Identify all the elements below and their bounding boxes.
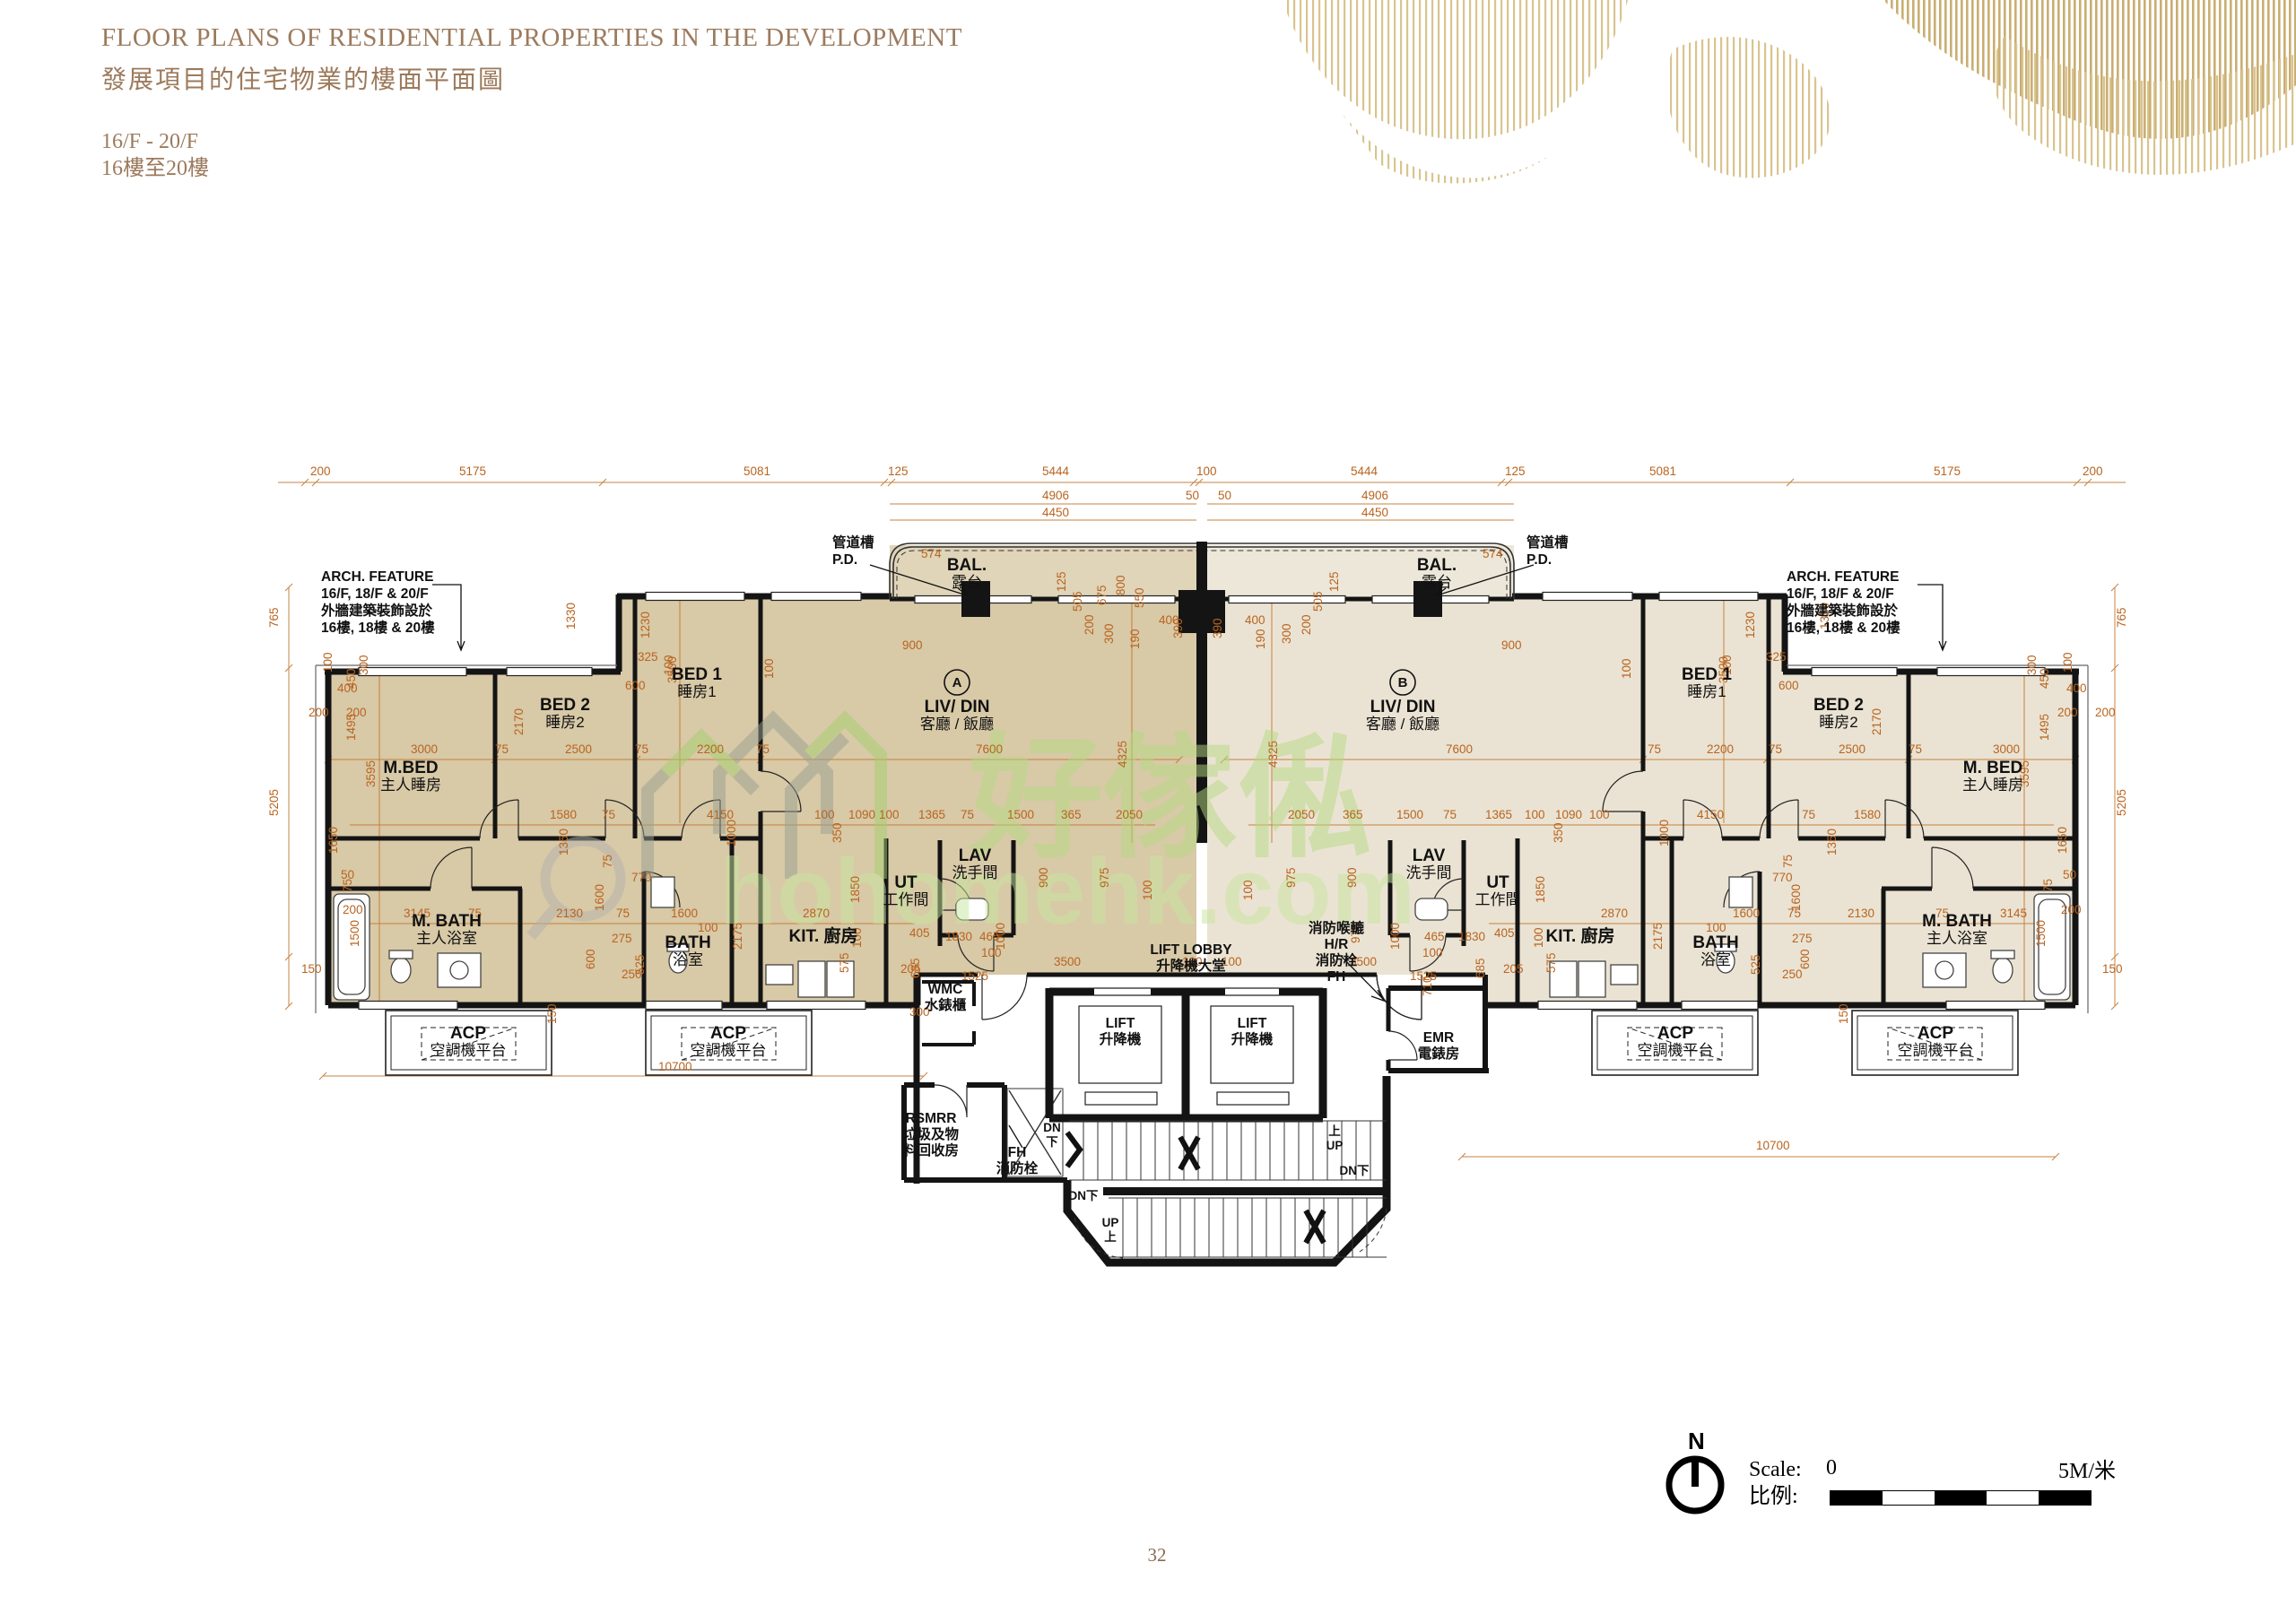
dim-label: 574: [921, 547, 942, 560]
dim-label: 150: [1837, 1003, 1850, 1024]
room-label: M. BATH: [1922, 912, 1992, 931]
core-label: FH: [1327, 969, 1346, 985]
dim-label: 100: [2061, 652, 2074, 673]
core-label: RSMRR: [906, 1111, 957, 1126]
dim-label: 75: [1769, 742, 1782, 756]
callout-label: 管道槽: [832, 534, 874, 551]
scale-start: 0: [1826, 1456, 1837, 1480]
dim-label: 300: [357, 655, 370, 675]
dim-label: 575: [1544, 952, 1558, 973]
core-label: 消防喉轆: [1309, 919, 1365, 936]
dim-label: 400: [1245, 613, 1265, 627]
dim-label: 1650: [2056, 827, 2069, 854]
dim-label: 675: [1095, 585, 1109, 605]
core-label: 消防栓: [996, 1159, 1039, 1176]
dim-label: 75: [601, 855, 614, 868]
compass-n-label: N: [1688, 1428, 1705, 1455]
floor-plan: 好傢俬 hohomehk.com 20051755081125544410054…: [242, 448, 2144, 1282]
dim-label: 765: [2115, 607, 2128, 628]
dim-label: 1090: [848, 808, 875, 821]
dim-label: 405: [1494, 926, 1515, 940]
dim-label: 325: [638, 650, 658, 664]
dim-label: 975: [1098, 867, 1111, 888]
dim-label: 200: [2095, 706, 2116, 719]
dim-label: 1350: [1825, 829, 1839, 855]
dim-label: 100: [879, 808, 900, 821]
room-label-zh: 空調機平台: [691, 1042, 767, 1059]
page-number: 32: [1112, 1544, 1202, 1567]
dim-label: 5205: [267, 789, 281, 816]
dim-label: 50: [1186, 489, 1199, 502]
dim-label: 1365: [1485, 808, 1512, 821]
room-label-zh: 露台: [1422, 574, 1452, 591]
dim-label: 1000: [1388, 923, 1402, 950]
dim-label: 1090: [1555, 808, 1582, 821]
dim-label: 1600: [671, 907, 698, 920]
dim-label: 2870: [803, 907, 830, 920]
dim-label: 365: [1061, 808, 1082, 821]
dim-label: 75: [616, 907, 630, 920]
dim-label: 10700: [1756, 1139, 1790, 1152]
room-label-zh: 客廳 / 飯廳: [1366, 716, 1439, 733]
dim-label: 4906: [1042, 489, 1069, 502]
dim-label: 975: [1284, 867, 1298, 888]
legend: N Scale: 比例: 0 5M/米: [1650, 1426, 2152, 1533]
dim-label: 275: [1792, 932, 1813, 945]
core-label: 消防栓: [1316, 951, 1358, 968]
dim-label: 250: [1782, 968, 1803, 981]
stair-label: 上: [1328, 1124, 1341, 1138]
room-label: LIV/ DIN: [925, 698, 990, 716]
dim-label: 100: [1525, 808, 1545, 821]
room-label: BED 1: [672, 665, 722, 684]
dim-label: 1500: [1396, 808, 1423, 821]
dim-label: 275: [612, 932, 632, 945]
dim-label: 4450: [1042, 506, 1069, 519]
dim-label: 50: [1218, 489, 1231, 502]
callout-label: 管道槽: [1526, 534, 1569, 551]
dim-label: 2500: [1839, 742, 1865, 756]
dim-label: 100: [1620, 658, 1633, 679]
room-label-zh: 浴室: [673, 951, 703, 968]
callout-label: 外牆建築裝飾設於: [1787, 602, 1899, 619]
callout-label: P.D.: [1526, 552, 1552, 568]
dim-label: 1500: [1007, 808, 1034, 821]
room-label: BAL.: [1417, 556, 1457, 575]
dim-label: 200: [2083, 464, 2103, 478]
core-label: 升降機: [1231, 1030, 1274, 1047]
room-label: BED 2: [1813, 696, 1864, 715]
dim-label: 75: [635, 742, 648, 756]
dim-label: 75: [756, 742, 770, 756]
dim-label: 685: [1474, 958, 1487, 978]
dim-label: 300: [2025, 655, 2039, 675]
core-label: 升降機: [1100, 1030, 1142, 1047]
core-label: 垃圾及物: [903, 1125, 960, 1142]
room-label: ACP: [1657, 1024, 1693, 1043]
dim-label: 100: [1141, 880, 1154, 900]
core-label: LIFT LOBBY: [1150, 942, 1232, 958]
room-label-zh: 空調機平台: [1898, 1042, 1974, 1059]
dim-label: 3000: [411, 742, 438, 756]
dim-label: 2050: [1288, 808, 1315, 821]
dim-label: 100: [1241, 880, 1255, 900]
dim-label: 200: [343, 903, 363, 916]
room-label-zh: 睡房1: [1687, 683, 1726, 700]
dim-label: 350: [831, 822, 844, 843]
dim-label: 5444: [1351, 464, 1378, 478]
callout-label: ARCH. FEATURE: [321, 569, 433, 585]
dim-label: 75: [961, 808, 974, 821]
dim-label: 300: [1280, 623, 1293, 644]
room-label-zh: 洗手間: [1406, 864, 1452, 881]
dim-label: 1830: [945, 930, 972, 943]
dim-label: 1350: [557, 829, 570, 855]
dim-label: 200: [1083, 614, 1096, 635]
floor-plan-drawing: 好傢俬 hohomehk.com 20051755081125544410054…: [242, 448, 2144, 1282]
dim-label: 390: [1171, 618, 1185, 638]
room-label: BED 2: [540, 696, 590, 715]
stair-labels: DN下上UPDN下DN下UP上: [1043, 1121, 1370, 1244]
room-label: BED 1: [1682, 665, 1732, 684]
dim-label: 525: [1749, 954, 1762, 975]
dim-label: 574: [1483, 547, 1503, 560]
dim-label: 100: [814, 808, 835, 821]
dim-label: 390: [1211, 618, 1224, 638]
dim-label: 200: [2061, 903, 2082, 916]
dim-label: 2200: [697, 742, 724, 756]
room-label: ACP: [450, 1024, 486, 1043]
dim-label: 1000: [1657, 820, 1671, 846]
dim-label: 710: [1421, 976, 1434, 996]
room-label-zh: 客廳 / 飯廳: [920, 716, 994, 733]
dim-label: 300: [1102, 623, 1116, 644]
dim-label: 2050: [1116, 808, 1143, 821]
dim-label: 1650: [326, 827, 340, 854]
core-label: 電錶房: [1418, 1045, 1460, 1062]
room-label-zh: 睡房2: [1819, 714, 1857, 731]
dim-label: 325: [1766, 650, 1787, 664]
dim-label: 600: [1779, 679, 1799, 692]
dim-label: 125: [1055, 571, 1068, 592]
dim-label: 1850: [848, 876, 862, 903]
dim-label: 400: [2066, 681, 2087, 695]
dim-label: 600: [1798, 949, 1812, 969]
room-label-zh: 工作間: [883, 891, 929, 908]
dim-label: 1830: [1458, 930, 1485, 943]
dim-label: 2130: [1848, 907, 1874, 920]
dim-label: 4325: [1116, 741, 1129, 768]
room-label-zh: 露台: [952, 574, 982, 591]
dim-label: 2175: [731, 923, 744, 950]
stair-label: DN下: [1069, 1189, 1099, 1202]
dim-label: 200: [2057, 706, 2078, 719]
decorative-wave-pattern: [1256, 0, 2296, 206]
dim-label: 1500: [348, 920, 361, 947]
dim-label: 4325: [1266, 741, 1280, 768]
dim-label: 190: [1128, 629, 1142, 649]
floor-range-en: 16/F - 20/F: [101, 128, 209, 155]
dim-label: 200: [1300, 614, 1313, 635]
dim-label: 5081: [1649, 464, 1676, 478]
core-label: 料回收房: [903, 1141, 959, 1159]
dim-label: 450: [2038, 668, 2051, 689]
dim-label: 1600: [1733, 907, 1760, 920]
dim-label: 2170: [1870, 708, 1883, 735]
dim-label: 75: [1648, 742, 1661, 756]
core-label: LIFT: [1238, 1016, 1267, 1031]
core-label: WMC: [928, 982, 963, 997]
dim-label: 1495: [344, 714, 358, 741]
dim-label: 5205: [2115, 789, 2128, 816]
dim-label: 125: [1327, 571, 1341, 592]
room-label-zh: 浴室: [1700, 951, 1731, 968]
dim-label: 685: [909, 958, 922, 978]
dim-label: 75: [1909, 742, 1922, 756]
dim-label: 100: [1422, 946, 1443, 959]
core-label: EMR: [1423, 1030, 1454, 1046]
dim-label: 75: [341, 879, 354, 892]
dim-label: 100: [1706, 921, 1726, 934]
room-label: LIV/ DIN: [1370, 698, 1436, 716]
page-title: FLOOR PLANS OF RESIDENTIAL PROPERTIES IN…: [101, 23, 962, 96]
dim-label: 1230: [639, 612, 652, 638]
dim-label: 75: [602, 808, 615, 821]
dim-label: 4906: [1361, 489, 1388, 502]
core-label: LIFT: [1106, 1016, 1135, 1031]
dim-label: 765: [267, 607, 281, 628]
stair-label: DN: [1043, 1121, 1061, 1134]
core-label: FH: [1008, 1145, 1027, 1160]
core-label: H/R: [1325, 937, 1349, 952]
stair-label: DN下: [1340, 1164, 1370, 1177]
dim-label: 1600: [1789, 884, 1803, 911]
dim-label: 800: [1114, 575, 1127, 595]
dim-label: 2130: [556, 907, 583, 920]
room-label-zh: 主人睡房: [1962, 777, 2023, 794]
room-label-zh: 主人浴室: [1926, 930, 1987, 947]
stair-label: 下: [1046, 1135, 1058, 1149]
dim-label: 7600: [976, 742, 1003, 756]
dim-label: 75: [1443, 808, 1457, 821]
dim-label: 100: [1589, 808, 1610, 821]
room-label: KIT. 廚房: [1545, 925, 1614, 946]
callout-label: 16樓, 18樓 & 20樓: [1787, 619, 1900, 636]
dim-label: 4150: [1697, 808, 1724, 821]
room-label: ACP: [710, 1024, 746, 1043]
stair-label: UP: [1102, 1216, 1119, 1229]
callout-label: ARCH. FEATURE: [1787, 569, 1899, 585]
stair-label: UP: [1326, 1139, 1344, 1152]
dim-label: 2170: [512, 708, 526, 735]
dim-label: 50: [2063, 868, 2076, 881]
dim-label: 75: [495, 742, 509, 756]
dim-label: 365: [1343, 808, 1363, 821]
dim-label: 1000: [725, 820, 738, 846]
dim-label: 1500: [2034, 920, 2048, 947]
dim-label: 205: [1503, 962, 1524, 976]
floor-range-zh: 16樓至20樓: [101, 155, 209, 182]
room-label-zh: 洗手間: [952, 864, 998, 881]
room-label: UT: [894, 873, 918, 892]
scale-bar: [1830, 1490, 2092, 1506]
dim-label: 7600: [1446, 742, 1473, 756]
dim-label: 575: [838, 952, 851, 973]
dim-label: 75: [2041, 879, 2055, 892]
scale-label-en: Scale:: [1749, 1456, 1802, 1483]
dim-label: 465: [979, 930, 1000, 943]
dim-label: 75: [1802, 808, 1815, 821]
dim-label: 465: [1424, 930, 1445, 943]
dim-label: 100: [698, 921, 718, 934]
room-label: KIT. 廚房: [788, 925, 857, 946]
room-label: LAV: [959, 846, 992, 865]
dim-label: 405: [909, 926, 930, 940]
unit-badge-letter: B: [1398, 675, 1408, 690]
scale-end: 5M/米: [2058, 1453, 2116, 1484]
room-label: M.BED: [383, 759, 438, 777]
dim-label: 100: [1532, 927, 1545, 948]
dim-label: 75: [1781, 855, 1795, 868]
dim-label: 4450: [1361, 506, 1388, 519]
dim-label: 2200: [1707, 742, 1734, 756]
dim-label: 10700: [658, 1060, 692, 1073]
dim-label: 3000: [1993, 742, 2020, 756]
dim-label: 100: [981, 946, 1002, 959]
dim-label: 900: [1501, 638, 1522, 652]
callout-label: P.D.: [832, 552, 857, 568]
dim-label: 900: [1037, 867, 1050, 888]
dim-label: 900: [1345, 867, 1359, 888]
callout-label: 16/F, 18/F & 20/F: [1787, 586, 1894, 602]
dim-label: 550: [1133, 587, 1146, 608]
room-label-zh: 睡房2: [545, 714, 584, 731]
dim-label: 190: [1254, 629, 1267, 649]
page-title-en: FLOOR PLANS OF RESIDENTIAL PROPERTIES IN…: [101, 23, 962, 53]
room-label: ACP: [1918, 1024, 1953, 1043]
room-label-zh: 主人睡房: [380, 777, 441, 794]
dim-label: 125: [888, 464, 909, 478]
dim-label: 150: [301, 962, 322, 976]
dim-label: 1600: [593, 884, 606, 911]
room-label: M. BATH: [412, 912, 482, 931]
callout-label: 16樓, 18樓 & 20樓: [321, 619, 435, 636]
dim-label: 1580: [550, 808, 577, 821]
dim-label: 600: [584, 949, 597, 969]
dim-label: 2175: [1651, 923, 1665, 950]
floor-range: 16/F - 20/F 16樓至20樓: [101, 128, 209, 182]
dim-label: 3595: [364, 760, 378, 787]
dim-label: 3145: [2000, 907, 2027, 920]
dim-label: 1525: [961, 969, 988, 983]
dim-label: 3500: [1054, 955, 1081, 968]
dim-label: 5444: [1042, 464, 1070, 478]
core-label: 水錶櫃: [925, 996, 967, 1013]
dim-label: 1330: [564, 603, 578, 629]
dim-label: 100: [762, 658, 776, 679]
dim-label: 505: [1071, 591, 1084, 612]
dim-label: 4150: [707, 808, 734, 821]
dim-label: 505: [1311, 591, 1325, 612]
dim-label: 600: [625, 679, 646, 692]
dim-label: 900: [902, 638, 923, 652]
dim-label: 150: [2102, 962, 2123, 976]
dim-label: 770: [1772, 871, 1793, 884]
core-label: 升降機大堂: [1156, 957, 1226, 974]
room-label: BATH: [1692, 933, 1738, 952]
dim-label: 5081: [744, 464, 770, 478]
dim-label: 2870: [1601, 907, 1628, 920]
room-label: BATH: [665, 933, 710, 952]
callout-label: 16/F, 18/F & 20/F: [321, 586, 429, 602]
dim-label: 1230: [1744, 612, 1757, 638]
room-label: BAL.: [947, 556, 987, 575]
dim-label: 1580: [1854, 808, 1881, 821]
dim-label: 1365: [918, 808, 945, 821]
dim-label: 2500: [565, 742, 592, 756]
dim-label: 770: [631, 871, 652, 884]
dim-label: 1495: [2038, 714, 2051, 741]
dim-label: 100: [1196, 464, 1217, 478]
room-label: M. BED: [1963, 759, 2023, 777]
scale-label-zh: 比例:: [1749, 1483, 1802, 1510]
room-label: UT: [1486, 873, 1509, 892]
room-label-zh: 睡房1: [677, 683, 716, 700]
dim-label: 125: [1505, 464, 1526, 478]
dim-label: 150: [545, 1003, 559, 1024]
dim-label: 100: [321, 652, 335, 673]
dim-label: 1850: [1534, 876, 1547, 903]
room-label-zh: 主人浴室: [416, 930, 477, 947]
dim-label: 250: [622, 968, 642, 981]
room-label-zh: 空調機平台: [1638, 1042, 1714, 1059]
callout-label: 外牆建築裝飾設於: [321, 602, 433, 619]
dim-label: 5175: [459, 464, 486, 478]
room-label-zh: 工作間: [1475, 891, 1521, 908]
room-label-zh: 空調機平台: [430, 1042, 507, 1059]
dim-label: 200: [309, 706, 329, 719]
stair-label: 上: [1104, 1230, 1117, 1244]
dim-label: 450: [344, 668, 358, 689]
dim-label: 350: [1552, 822, 1565, 843]
page-title-zh: 發展項目的住宅物業的樓面平面圖: [101, 60, 962, 96]
room-label: LAV: [1413, 846, 1446, 865]
dim-label: 200: [310, 464, 331, 478]
brochure-page: FLOOR PLANS OF RESIDENTIAL PROPERTIES IN…: [0, 0, 2296, 1623]
dim-label: 5175: [1934, 464, 1961, 478]
unit-badge-letter: A: [952, 675, 962, 690]
scale-label: Scale: 比例:: [1749, 1456, 1802, 1510]
